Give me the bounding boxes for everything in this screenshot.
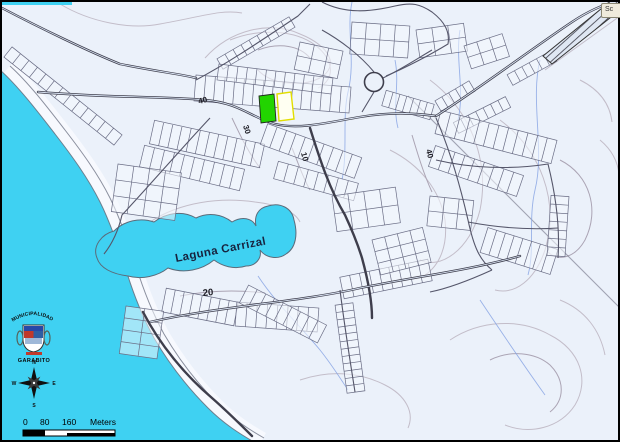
scale-tick-0: 0 <box>23 417 28 427</box>
compass-n: N <box>32 360 36 366</box>
scale-unit: Meters <box>90 417 116 427</box>
ocean-top-sliver <box>2 2 72 5</box>
scale-tick-160: 160 <box>62 417 76 427</box>
clipped-toolbar-button[interactable]: Sc <box>601 3 620 18</box>
scale-tick-80: 80 <box>40 417 50 427</box>
map-canvas[interactable]: 40 30 10 40 20 Laguna Carrizal MUNICIPAL… <box>0 0 620 442</box>
parcel-lot-group <box>111 164 181 220</box>
parcel-lot-group <box>350 22 410 58</box>
parcel-lot-group <box>119 306 163 359</box>
map-viewport[interactable]: 40 30 10 40 20 Laguna Carrizal MUNICIPAL… <box>0 0 620 442</box>
adjacent-highlight-parcel[interactable] <box>277 92 294 121</box>
selected-parcel[interactable] <box>259 94 276 123</box>
roundabout <box>365 73 384 92</box>
contour-label-20: 20 <box>202 287 213 299</box>
compass-w: W <box>12 381 17 387</box>
